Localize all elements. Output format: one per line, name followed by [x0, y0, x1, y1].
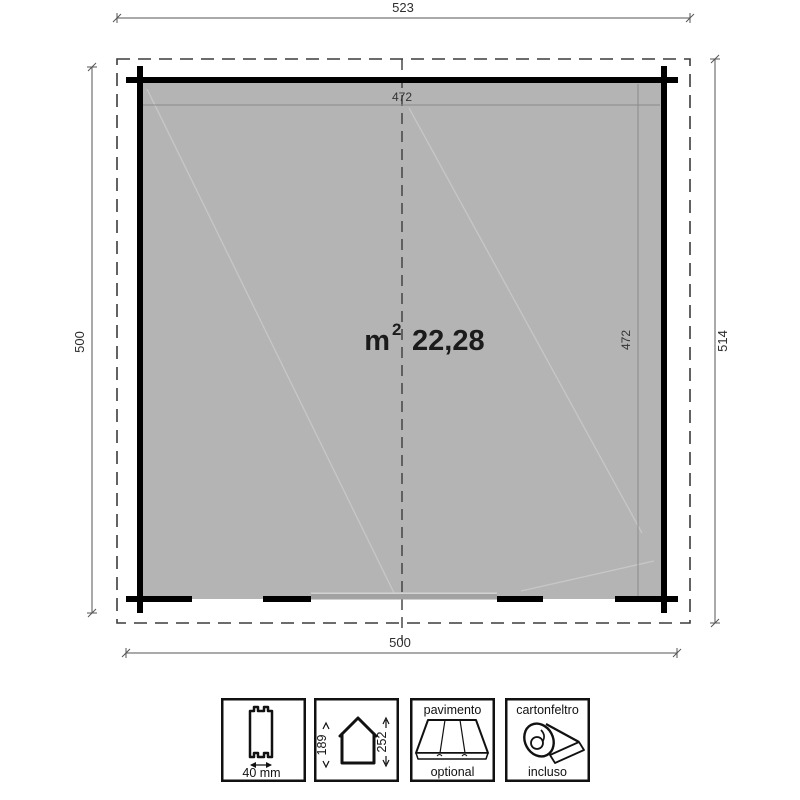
wall-profile-icon — [250, 707, 272, 757]
inner-width-value: 472 — [392, 90, 412, 104]
legend-box-roof-felt: cartonfeltro incluso — [505, 698, 590, 782]
wall-right — [661, 66, 667, 613]
felt-bottom-label: incluso — [528, 765, 567, 779]
legend-box-house-heights: 189 252 — [314, 698, 399, 782]
area-value: 22,28 — [412, 325, 485, 357]
area-unit-exponent: 2 — [392, 320, 401, 339]
wall-bottom-segment — [126, 596, 192, 602]
floor-bottom-label: optional — [431, 765, 475, 779]
wall-bottom-segment — [497, 596, 543, 602]
dimension-top-value: 523 — [392, 0, 414, 15]
wall-left — [137, 66, 143, 613]
front-door-bar — [311, 594, 497, 600]
floor-boards-icon — [416, 720, 488, 759]
legend-box-wall-thickness: 40 mm — [221, 698, 306, 782]
wall-thickness-label: 40 mm — [242, 766, 280, 780]
floor-plan-page: 472 472 m 2 22,28 — [0, 0, 800, 800]
eave-height-value: 189 — [315, 735, 329, 756]
dimension-left-value: 500 — [72, 331, 87, 353]
wall-bottom-segment — [263, 596, 311, 602]
floor-top-label: pavimento — [424, 703, 482, 717]
floor-plan-drawing: 472 472 m 2 22,28 — [0, 0, 800, 692]
inner-depth-value: 472 — [619, 330, 633, 350]
wall-bottom-segment — [615, 596, 678, 602]
area-unit: m — [364, 325, 390, 357]
wall-top — [126, 77, 678, 83]
dimension-right-value: 514 — [715, 330, 730, 352]
door-top-edge — [311, 593, 497, 595]
legend-box-floor: pavimento optional — [410, 698, 495, 782]
felt-top-label: cartonfeltro — [516, 703, 579, 717]
ridge-height-value: 252 — [375, 732, 389, 753]
floor-area — [140, 80, 661, 599]
dimension-bottom-value: 500 — [389, 635, 411, 650]
